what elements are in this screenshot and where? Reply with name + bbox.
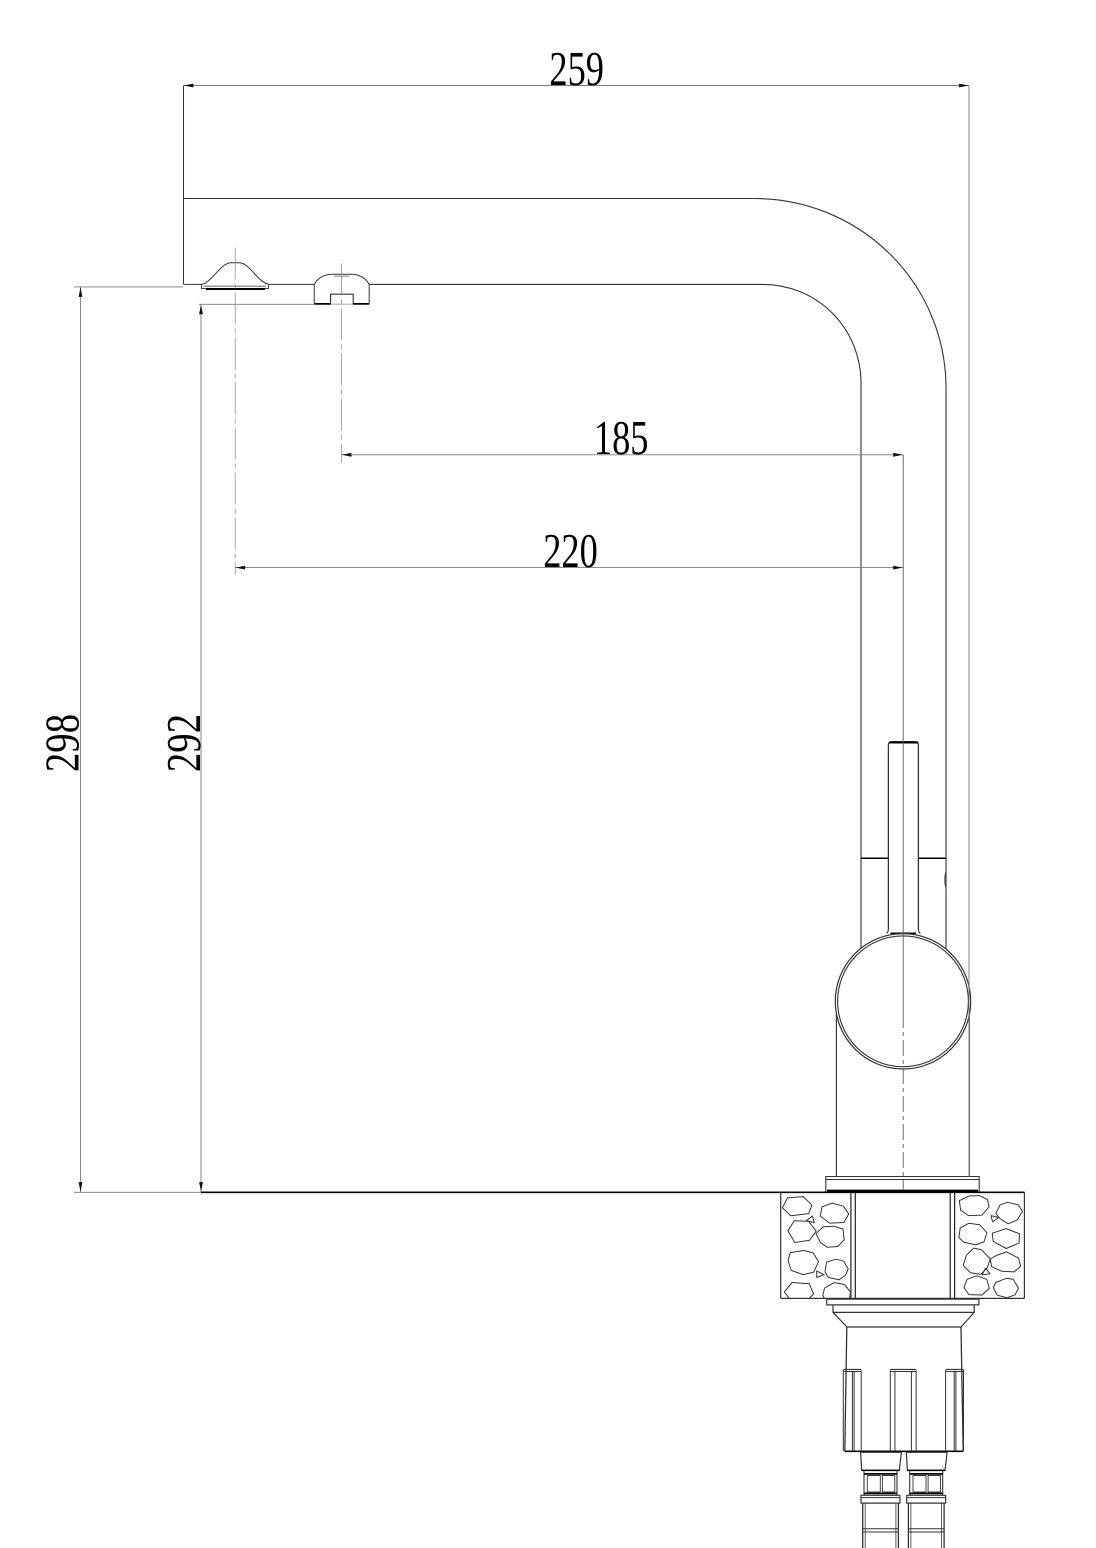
svg-text:185: 185: [594, 412, 649, 465]
svg-text:220: 220: [543, 525, 598, 578]
svg-text:298: 298: [37, 714, 90, 772]
svg-text:292: 292: [158, 714, 211, 772]
svg-text:259: 259: [549, 43, 604, 96]
